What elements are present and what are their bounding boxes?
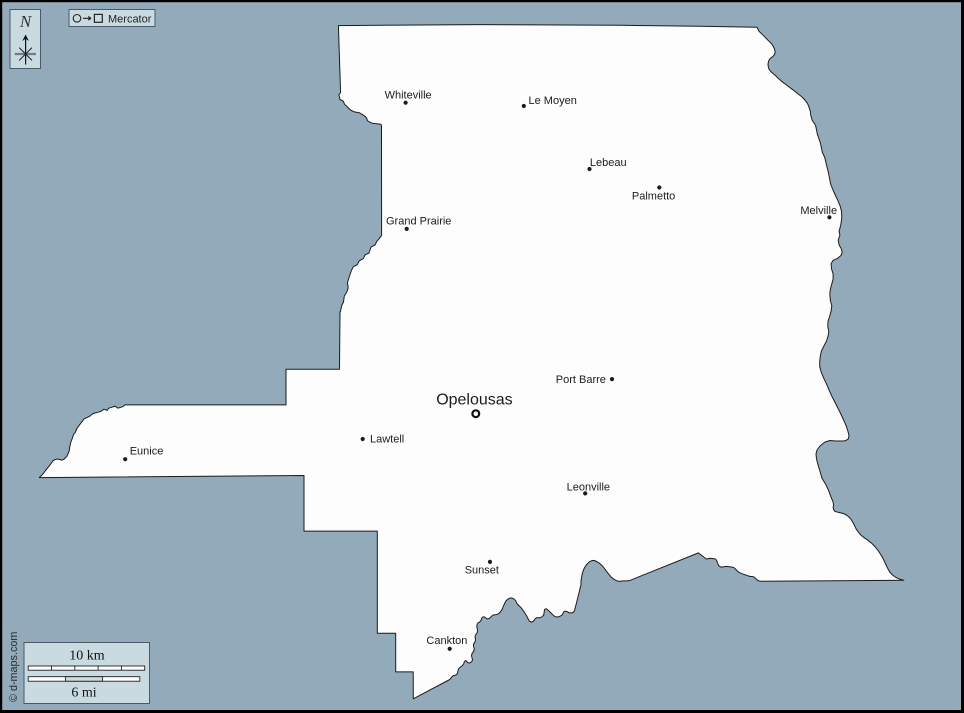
svg-text:6 mi: 6 mi	[71, 686, 96, 701]
svg-text:© d-maps.com: © d-maps.com	[8, 632, 20, 702]
svg-text:N: N	[19, 12, 33, 31]
svg-text:Grand Prairie: Grand Prairie	[386, 216, 451, 228]
svg-text:Leonville: Leonville	[567, 482, 610, 494]
svg-text:Lawtell: Lawtell	[370, 434, 404, 446]
svg-text:Eunice: Eunice	[130, 446, 164, 458]
svg-text:Melville: Melville	[800, 205, 837, 217]
svg-text:Le Moyen: Le Moyen	[529, 95, 577, 107]
svg-text:Palmetto: Palmetto	[632, 190, 675, 202]
svg-text:Sunset: Sunset	[465, 564, 499, 576]
svg-text:Whiteville: Whiteville	[385, 89, 432, 101]
svg-text:10 km: 10 km	[69, 649, 105, 664]
svg-text:Port Barre: Port Barre	[556, 374, 606, 386]
svg-text:Cankton: Cankton	[426, 635, 467, 647]
svg-text:Lebeau: Lebeau	[590, 157, 627, 169]
svg-text:Mercator: Mercator	[108, 14, 152, 26]
svg-text:Opelousas: Opelousas	[436, 392, 513, 409]
